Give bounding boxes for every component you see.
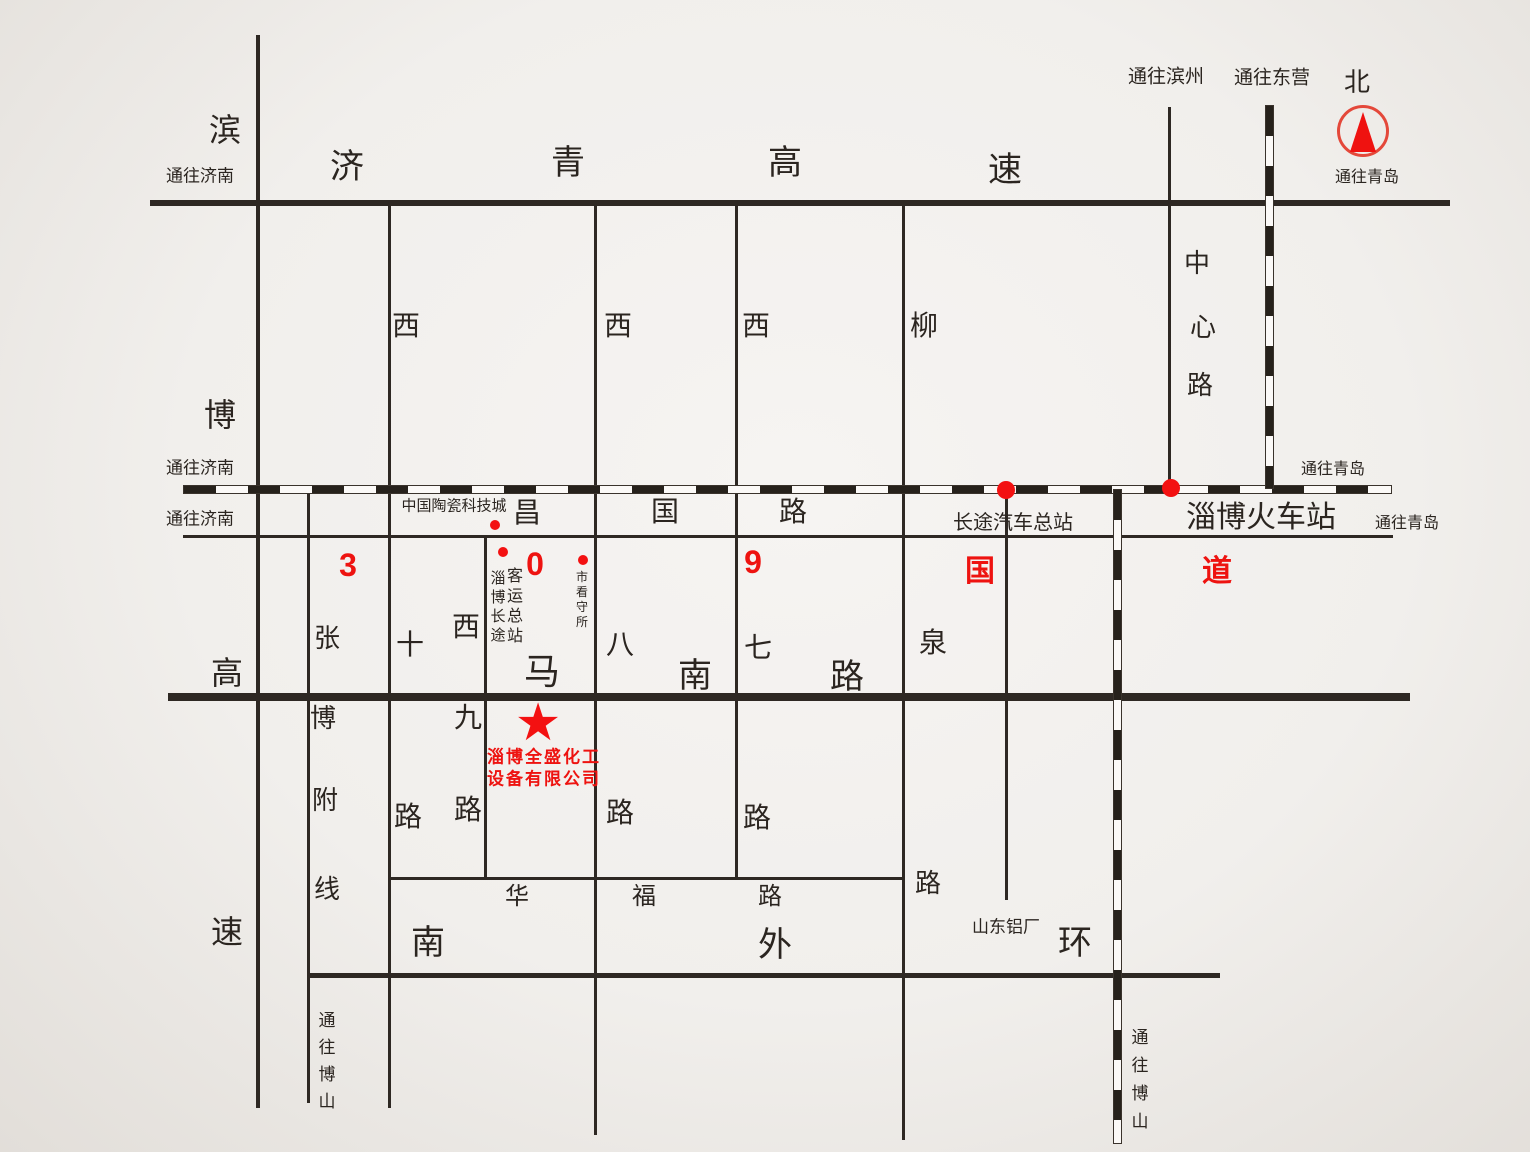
poi-bus-terminal-col1-char: 长	[490, 607, 505, 626]
liuquan-char-liu: 柳	[910, 312, 938, 340]
poi-bus-terminal-col1: 淄博长途	[490, 569, 505, 645]
poi-bus-terminal-col2: 客运总站	[507, 567, 523, 647]
route309-char-0: 0	[526, 548, 544, 580]
changguo-road	[183, 535, 1393, 538]
poi-bus-terminal-col1-char: 淄	[490, 569, 505, 588]
xishi-road	[388, 203, 391, 1108]
poi-detention-house: 市看守所	[576, 570, 588, 630]
railway-south-branch	[1113, 489, 1122, 1144]
station-access-road	[1005, 490, 1008, 900]
nanma-road	[168, 693, 1410, 701]
route309-char-3: 3	[339, 549, 357, 581]
xijiu-road	[484, 536, 487, 878]
dest-jinan-expressway: 通往济南	[166, 168, 234, 185]
binbo-char-su: 速	[211, 916, 243, 948]
xijiu-char-lu: 路	[454, 796, 482, 824]
dest-jinan-changguo: 通往济南	[166, 511, 234, 528]
xiqi-road	[735, 203, 738, 878]
nanma-char-ma: 马	[524, 654, 560, 690]
dest-qingdao-railway: 通往青岛	[1301, 462, 1365, 478]
poi-aluminum-plant: 山东铝厂	[972, 919, 1040, 936]
nanwaihuan-road	[310, 973, 1220, 978]
railway-station-dot	[1162, 479, 1180, 497]
dest-boshan-railway: 通往博山	[1132, 1024, 1149, 1136]
dest-boshan-railway-char: 博	[1132, 1080, 1149, 1108]
xiqi-char-xi: 西	[742, 312, 770, 340]
dest-binzhou: 通往滨州	[1128, 68, 1204, 87]
poi-railway-station: 淄博火车站	[1186, 503, 1336, 533]
route309-char-9: 9	[744, 546, 762, 578]
changguo-char-chang: 昌	[513, 499, 541, 527]
poi-bus-terminal-col2-char: 总	[507, 607, 523, 627]
xijiu-char-jiu: 九	[454, 704, 482, 732]
coach-station-dot	[997, 481, 1015, 499]
xijiu-char-xi: 西	[452, 613, 480, 641]
dest-qingdao-compass: 通往青岛	[1335, 170, 1399, 186]
dest-qingdao-changguo: 通往青岛	[1375, 516, 1439, 532]
nanwaihuan-char-huan: 环	[1058, 926, 1092, 960]
binbo-char-bo: 博	[204, 399, 236, 431]
xiqi-char-qi: 七	[744, 634, 772, 662]
liuquan-road	[902, 203, 905, 1140]
bus-terminal-dot	[498, 547, 508, 557]
north-label: 北	[1344, 69, 1370, 95]
poi-detention-house-char: 守	[576, 600, 588, 615]
zhangbo-char-zhang: 张	[314, 625, 340, 651]
detention-house-dot	[578, 555, 588, 565]
poi-detention-house-char: 看	[576, 585, 588, 600]
north-compass	[1337, 105, 1389, 157]
huafu-char-lu: 路	[758, 885, 782, 909]
jiqing-expressway	[150, 200, 1450, 206]
dest-boshan-west: 通往博山	[319, 1007, 336, 1115]
north-arrow-icon	[1350, 112, 1376, 152]
zhongxin-char-lu: 路	[1187, 372, 1213, 398]
zibo-location-map: 通往济南通往济南通往济南通往滨州通往东营北通往青岛通往青岛通往青岛通往博山通往博…	[0, 0, 1530, 1152]
xiqi-char-lu: 路	[743, 804, 771, 832]
zhangbo-char-fu: 附	[312, 787, 338, 813]
xishi-char-lu: 路	[394, 803, 422, 831]
route309-char-guo: 国	[965, 557, 995, 587]
binbo-char-bin: 滨	[209, 114, 241, 146]
xishi-char-shi: 十	[396, 631, 424, 659]
changguo-char-lu: 路	[779, 498, 807, 526]
nanwaihuan-char-wai: 外	[758, 928, 792, 962]
changguo-char-guo: 国	[651, 498, 679, 526]
zhongxin-char-xin: 心	[1190, 314, 1216, 340]
dest-boshan-west-char: 通	[319, 1007, 336, 1034]
binbo-char-gao: 高	[211, 657, 243, 689]
xiba-char-ba: 八	[606, 631, 634, 659]
huafu-road	[389, 877, 903, 880]
poi-bus-terminal-col2-char: 运	[507, 587, 523, 607]
xishi-char-xi: 西	[392, 312, 420, 340]
nanma-char-lu: 路	[830, 660, 864, 694]
poi-bus-terminal-col1-char: 途	[490, 626, 505, 645]
liuquan-char-lu: 路	[915, 870, 941, 896]
poi-coach-station: 长途汽车总站	[953, 513, 1073, 533]
dest-boshan-west-char: 往	[319, 1034, 336, 1061]
ceramic-city-dot	[490, 520, 500, 530]
railway-north-branch	[1265, 105, 1274, 489]
huafu-char-hua: 华	[505, 885, 529, 909]
dest-boshan-west-char: 博	[319, 1061, 336, 1088]
company-name-line2: 设备有限公司	[487, 771, 601, 788]
zhongxin-road	[1168, 107, 1171, 489]
poi-ceramic-city: 中国陶瓷科技城	[401, 499, 506, 514]
poi-bus-terminal-col1-char: 博	[490, 588, 505, 607]
xiba-char-lu: 路	[606, 799, 634, 827]
binbo-expressway	[256, 35, 260, 1108]
zhongxin-char-zhong: 中	[1184, 250, 1210, 276]
poi-bus-terminal-col2-char: 站	[507, 627, 523, 647]
jiqing-char-su: 速	[988, 153, 1022, 187]
route309-char-dao: 道	[1202, 557, 1232, 587]
poi-detention-house-char: 所	[576, 615, 588, 630]
dest-boshan-railway-char: 往	[1132, 1052, 1149, 1080]
huafu-char-fu: 福	[632, 885, 656, 909]
poi-detention-house-char: 市	[576, 570, 588, 585]
jiqing-char-ji: 济	[330, 150, 364, 184]
zhangbo-char-xian: 线	[314, 876, 340, 902]
dest-dongying: 通往东营	[1234, 69, 1310, 88]
dest-boshan-railway-char: 通	[1132, 1024, 1149, 1052]
railway-main	[183, 485, 1392, 494]
xiba-road	[594, 203, 597, 1135]
zhangbo-char-bo: 博	[310, 705, 336, 731]
dest-boshan-railway-char: 山	[1132, 1108, 1149, 1136]
dest-boshan-west-char: 山	[319, 1088, 336, 1115]
jiqing-char-gao: 高	[768, 146, 802, 180]
dest-jinan-railway: 通往济南	[166, 460, 234, 477]
zhangbo-branch-line	[307, 488, 310, 1103]
poi-bus-terminal-col2-char: 客	[507, 567, 523, 587]
jiqing-char-qing: 青	[551, 146, 585, 180]
xiba-char-xi: 西	[604, 312, 632, 340]
nanwaihuan-char-nan: 南	[411, 926, 445, 960]
liuquan-char-quan: 泉	[919, 629, 947, 657]
nanma-char-nan: 南	[678, 659, 712, 693]
company-location-star: ★	[515, 697, 562, 749]
